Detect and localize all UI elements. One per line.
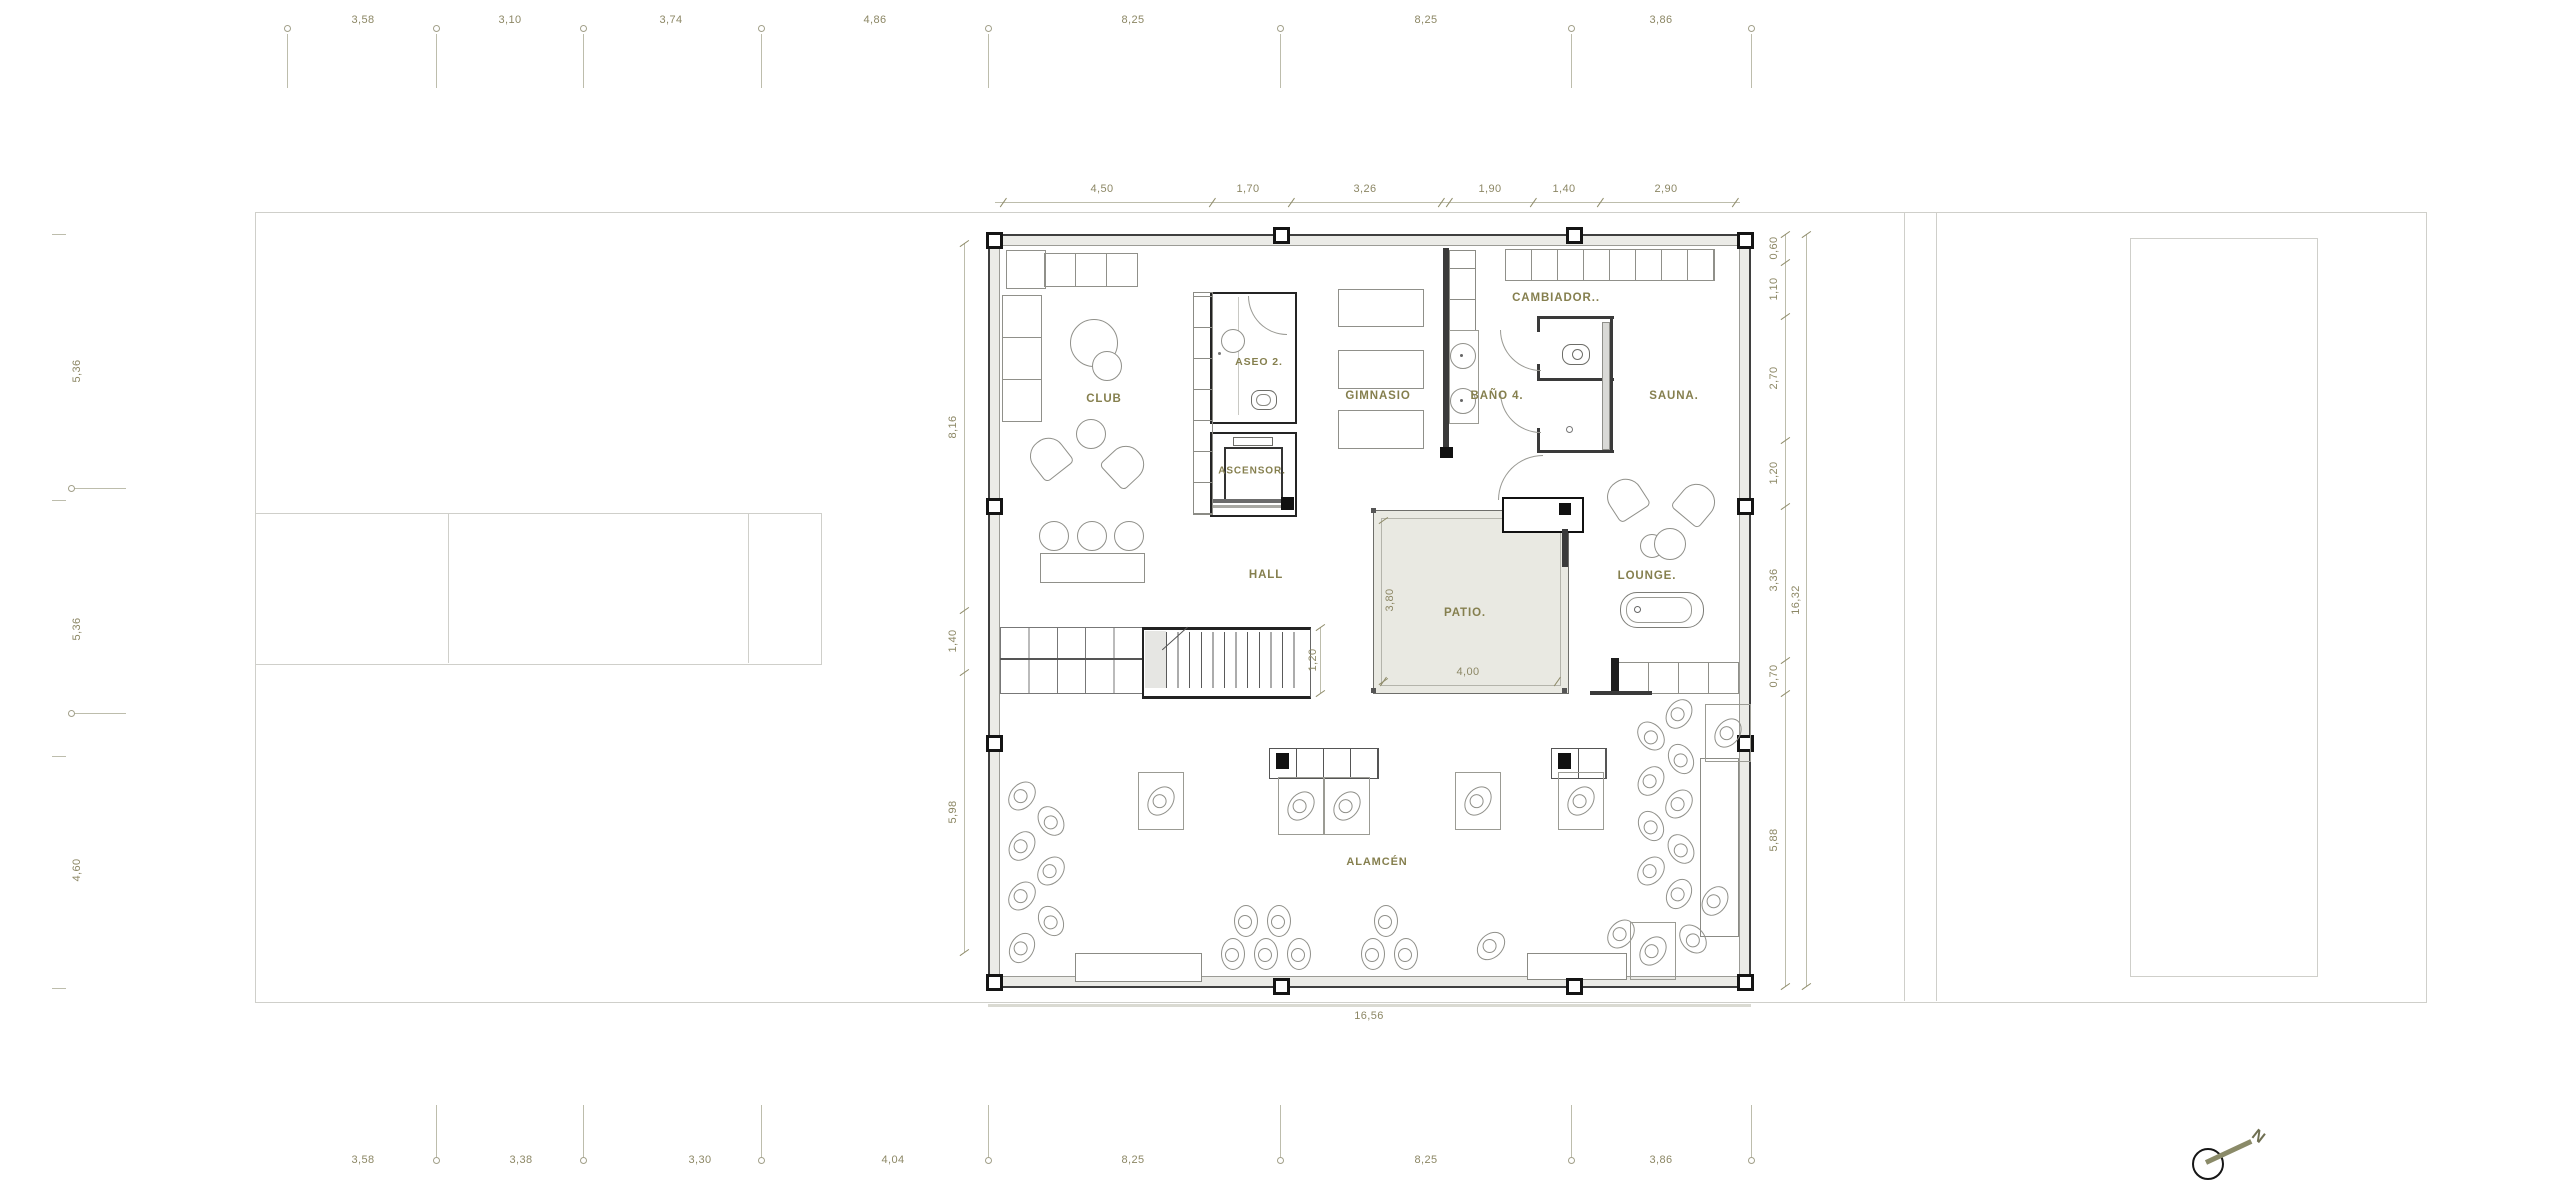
stall-top-wall	[1537, 316, 1614, 319]
column-icon	[1273, 978, 1290, 995]
site-leader-line	[436, 1105, 437, 1157]
stacked-chair-inner	[1480, 936, 1500, 956]
stair-dim-line	[1320, 627, 1321, 693]
stacked-chair-icon	[1267, 905, 1291, 937]
site-leader-circle	[758, 25, 765, 32]
column-icon	[1737, 974, 1754, 991]
site-level-mark	[52, 988, 66, 989]
plan-left-dim-line	[964, 243, 965, 952]
dim-stair-width: 1,20	[1307, 648, 1319, 671]
dim-site-left-1: 5,36	[71, 359, 83, 382]
dim-site-top-7: 3,86	[1649, 14, 1672, 26]
site-leader-circle	[1568, 1157, 1575, 1164]
patio-wall-stub	[1562, 529, 1568, 567]
patio-corner-1	[1371, 508, 1376, 513]
elevator-top-plate	[1233, 437, 1273, 446]
floor-plan-canvas: 3,58 3,10 3,74 4,86 8,25 8,25 3,86 3,58 …	[0, 0, 2560, 1200]
stacked-chair-icon	[1287, 938, 1311, 970]
room-label-cambiador: CAMBIADOR..	[1512, 292, 1600, 304]
site-leader-circle	[985, 25, 992, 32]
patio-inner-line	[1381, 518, 1561, 686]
almacen-table-2	[1527, 953, 1627, 980]
site-leader-line	[583, 34, 584, 88]
site-leader-circle	[68, 485, 75, 492]
stall-bottom-wall	[1537, 450, 1614, 453]
hall-stool-1	[1039, 521, 1069, 551]
site-leader-circle	[1277, 25, 1284, 32]
site-leader-line	[1751, 1105, 1752, 1157]
stall-toilet-inner	[1572, 349, 1583, 360]
stall-slider-track	[1602, 322, 1610, 450]
stacked-chair-icon	[1394, 938, 1418, 970]
site-leader-line	[287, 34, 288, 88]
stacked-chair-inner	[1271, 915, 1285, 929]
patio-corner-4	[1562, 688, 1567, 693]
stair-treads	[1166, 632, 1304, 688]
club-shelf-a	[1006, 250, 1046, 289]
dim-plan-right-2: 1,10	[1768, 277, 1780, 300]
stacked-chair-inner	[1291, 948, 1305, 962]
dim-plan-right-7: 5,88	[1768, 828, 1780, 851]
stall-right-wall	[1610, 316, 1613, 453]
stacked-chair-inner	[1641, 728, 1661, 748]
dim-site-top-6: 8,25	[1414, 14, 1437, 26]
core-corner-block	[1281, 497, 1294, 510]
club-shelf-b	[1044, 253, 1138, 287]
site-leader-line	[436, 34, 437, 88]
lounge-table-large	[1654, 528, 1686, 560]
site-leader-line	[1280, 34, 1281, 88]
hall-stool-2	[1077, 521, 1107, 551]
dim-plan-left-1: 8,16	[947, 415, 959, 438]
stacked-chair-inner	[1378, 915, 1392, 929]
site-leader-circle	[1748, 1157, 1755, 1164]
site-leader-circle	[284, 25, 291, 32]
lounge-bench-endwall	[1611, 658, 1619, 695]
site-leader-circle	[433, 1157, 440, 1164]
column-icon	[1566, 978, 1583, 995]
site-divider-line	[1904, 212, 1905, 1001]
stacked-chair-inner	[1238, 915, 1252, 929]
room-label-aseo: ASEO 2.	[1235, 356, 1283, 368]
site-level-mark	[52, 756, 66, 757]
stacked-chair-inner	[1717, 723, 1737, 743]
stacked-chair-inner	[1668, 794, 1688, 814]
bano-shelf-strip	[1449, 250, 1476, 332]
outbuilding-left-divider2	[748, 513, 749, 663]
hall-stool-3	[1114, 521, 1144, 551]
hall-table	[1040, 553, 1145, 583]
stacked-chair-inner	[1641, 818, 1660, 837]
stacked-chair-icon	[1254, 938, 1278, 970]
column-icon	[1737, 498, 1754, 515]
stacked-chair-icon	[1361, 938, 1385, 970]
plan-top-dim-line	[995, 202, 1740, 203]
elevator-door-track2	[1212, 505, 1292, 508]
dim-site-left-2: 5,36	[71, 617, 83, 640]
stacked-chair-inner	[1642, 941, 1662, 961]
bathtub-drain	[1634, 606, 1641, 613]
site-leader-line	[1571, 1105, 1572, 1157]
club-table-small	[1092, 351, 1122, 381]
stacked-chair-inner	[1640, 771, 1659, 790]
site-leader-line	[583, 1105, 584, 1157]
outbuilding-left	[255, 513, 822, 665]
elevator-door-track1	[1212, 499, 1292, 503]
north-arrow-label: N	[2248, 1126, 2268, 1147]
plan-bottom-total-line	[988, 1004, 1751, 1007]
stacked-chair-inner	[1040, 861, 1060, 881]
stacked-chair-inner	[1610, 924, 1630, 944]
plan-right-dim-line	[1785, 234, 1786, 986]
room-label-almacen: ALAMCÉN	[1346, 856, 1407, 868]
stacked-chair-inner	[1011, 786, 1031, 806]
core-shelf-strip	[1193, 292, 1213, 515]
site-leader-line	[761, 34, 762, 88]
dim-plan-top-3: 3,26	[1353, 183, 1376, 195]
dim-plan-top-4: 1,90	[1478, 183, 1501, 195]
stacked-chair-inner	[1290, 796, 1310, 816]
stacked-chair-inner	[1668, 885, 1687, 904]
bano-basin-1	[1450, 343, 1476, 369]
site-leader-circle	[433, 25, 440, 32]
stacked-chair-inner	[1365, 948, 1379, 962]
stacked-chair-inner	[1640, 861, 1660, 881]
dim-site-bottom-3: 3,30	[688, 1154, 711, 1166]
gym-equipment-2	[1338, 350, 1424, 389]
stacked-chair-inner	[1011, 836, 1030, 855]
site-leader-line	[1280, 1105, 1281, 1157]
dim-site-bottom-6: 8,25	[1414, 1154, 1437, 1166]
patio-bench-block	[1559, 503, 1571, 515]
patio-corner-3	[1371, 688, 1376, 693]
stair-grid-mid	[1000, 658, 1142, 660]
dim-plan-right-total: 16,32	[1790, 585, 1802, 615]
dim-patio-width: 4,00	[1456, 666, 1479, 678]
stacked-chair-inner	[1336, 796, 1356, 816]
stair-grid	[1000, 627, 1144, 694]
washbasin-dot	[1218, 352, 1221, 355]
stacked-chair-inner	[1704, 891, 1723, 910]
dim-plan-top-5: 1,40	[1552, 183, 1575, 195]
column-icon	[986, 735, 1003, 752]
column-icon	[986, 974, 1003, 991]
stacked-chair-inner	[1150, 791, 1170, 811]
dim-site-bottom-4: 4,04	[881, 1154, 904, 1166]
stacked-chair-inner	[1041, 913, 1060, 932]
room-label-bano: BAÑO 4.	[1471, 390, 1524, 402]
bano-basin-dot-2	[1460, 399, 1463, 402]
site-leader-line	[1751, 34, 1752, 88]
dim-plan-right-4: 1,20	[1768, 461, 1780, 484]
site-leader-line	[1571, 34, 1572, 88]
room-label-ascensor: ASCENSOR.	[1218, 466, 1286, 477]
stacked-chair-icon	[1234, 905, 1258, 937]
dim-site-top-1: 3,58	[351, 14, 374, 26]
outbuilding-right	[2130, 238, 2318, 977]
stacked-chair-inner	[1225, 948, 1239, 962]
site-leader-line	[74, 713, 126, 714]
room-label-hall: HALL	[1249, 569, 1283, 581]
site-leader-circle	[1568, 25, 1575, 32]
stacked-chair-inner	[1671, 751, 1690, 770]
site-leader-line	[988, 34, 989, 88]
club-side-table	[1076, 419, 1106, 449]
stair-landing	[1145, 631, 1166, 688]
site-leader-circle	[1277, 1157, 1284, 1164]
dim-plan-left-2: 1,40	[947, 629, 959, 652]
dim-patio-height: 3,80	[1384, 588, 1396, 611]
stacked-chair-inner	[1683, 931, 1703, 951]
site-leader-line	[988, 1105, 989, 1157]
room-label-lounge: LOUNGE.	[1618, 570, 1677, 582]
wet-wall-cap	[1440, 447, 1453, 458]
outbuilding-left-divider1	[448, 513, 449, 663]
site-leader-line	[761, 1105, 762, 1157]
site-level-mark	[52, 234, 66, 235]
site-leader-circle	[758, 1157, 765, 1164]
room-label-patio: PATIO.	[1444, 607, 1486, 619]
dim-site-left-3: 4,60	[71, 858, 83, 881]
gym-equipment-1	[1338, 289, 1424, 327]
column-icon	[1566, 227, 1583, 244]
club-wall-shelf	[1002, 295, 1042, 422]
dim-site-top-2: 3,10	[498, 14, 521, 26]
site-level-mark	[52, 500, 66, 501]
dim-plan-top-2: 1,70	[1236, 183, 1259, 195]
stacked-chair-icon	[1374, 905, 1398, 937]
dim-site-top-3: 3,74	[659, 14, 682, 26]
dim-plan-right-5: 3,36	[1768, 568, 1780, 591]
site-leader-line	[74, 488, 126, 489]
dim-plan-right-6: 0,70	[1768, 664, 1780, 687]
room-label-club: CLUB	[1086, 393, 1122, 405]
toilet-inner	[1256, 394, 1271, 406]
stacked-chair-inner	[1041, 813, 1060, 832]
bano-basin-dot-1	[1460, 354, 1463, 357]
dim-plan-right-3: 2,70	[1768, 366, 1780, 389]
dim-site-bottom-5: 8,25	[1121, 1154, 1144, 1166]
lounge-bench-underline	[1590, 691, 1652, 695]
dim-site-bottom-2: 3,38	[509, 1154, 532, 1166]
column-icon	[986, 498, 1003, 515]
site-divider-line2	[1936, 212, 1937, 1001]
almacen-table-1	[1075, 953, 1202, 982]
site-leader-circle	[580, 25, 587, 32]
dim-plan-top-6: 2,90	[1654, 183, 1677, 195]
dim-plan-left-3: 5,98	[947, 800, 959, 823]
stacked-chair-inner	[1258, 948, 1272, 962]
stacked-chair-inner	[1011, 939, 1030, 958]
dim-plan-right-1: 0,60	[1768, 236, 1780, 259]
dim-site-top-4: 4,86	[863, 14, 886, 26]
column-icon	[986, 232, 1003, 249]
gym-equipment-3	[1338, 410, 1424, 449]
cambiador-lockers	[1505, 249, 1715, 281]
site-leader-circle	[985, 1157, 992, 1164]
site-leader-circle	[580, 1157, 587, 1164]
patio-bench	[1502, 497, 1584, 533]
dim-site-bottom-1: 3,58	[351, 1154, 374, 1166]
stacked-chair-icon	[1221, 938, 1245, 970]
stacked-chair-inner	[1668, 704, 1687, 723]
dim-site-bottom-7: 3,86	[1649, 1154, 1672, 1166]
dim-plan-top-1: 4,50	[1090, 183, 1113, 195]
stacked-chair-inner	[1671, 841, 1690, 860]
column-icon	[1273, 227, 1290, 244]
stacked-chair-inner	[1398, 948, 1412, 962]
stacked-chair-inner	[1011, 886, 1031, 906]
lounge-bench	[1618, 662, 1739, 694]
stacked-chair-inner	[1467, 791, 1487, 811]
dim-site-top-5: 8,25	[1121, 14, 1144, 26]
dim-plan-bottom-total: 16,56	[1354, 1010, 1384, 1022]
shower-drain-dot	[1566, 426, 1573, 433]
washbasin-icon	[1221, 329, 1245, 353]
site-leader-circle	[68, 710, 75, 717]
room-label-sauna: SAUNA.	[1649, 390, 1699, 402]
stacked-chair-inner	[1570, 791, 1590, 811]
room-label-gimnasio: GIMNASIO	[1345, 390, 1410, 402]
site-leader-circle	[1748, 25, 1755, 32]
almacen-locker-2-block	[1558, 753, 1571, 769]
column-icon	[1737, 232, 1754, 249]
plan-right-total-dim-line	[1806, 234, 1807, 986]
almacen-locker-1-block	[1276, 753, 1289, 769]
